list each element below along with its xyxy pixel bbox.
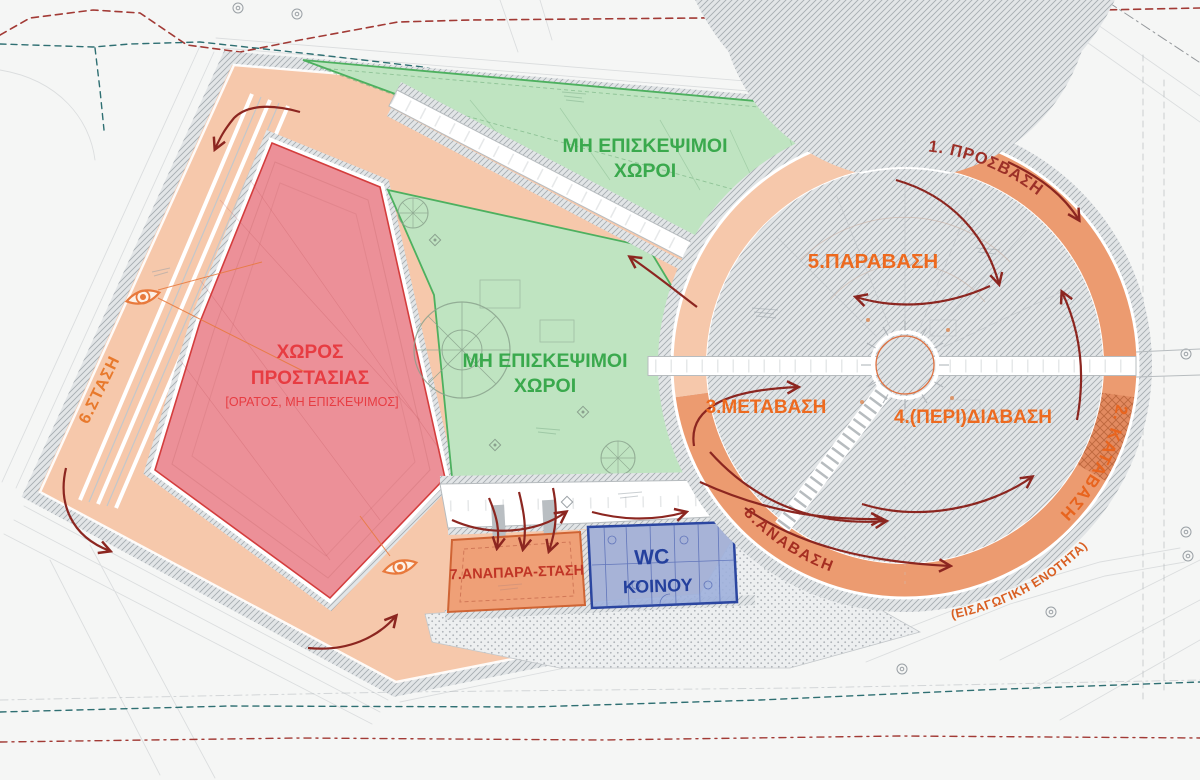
wc-label-line1: WC xyxy=(634,545,670,569)
zone-3-label: 3.ΜΕΤΑΒΑΣΗ xyxy=(706,397,827,418)
site-plan: 1. ΠΡΟΣΒΑΣΗ 2. ΚΑΤΑΒΑΣΗ (ΕΙΣΑΓΩΓΙΚΗ ΕΝΟΤ… xyxy=(0,0,1200,780)
ring-assembly xyxy=(648,0,1200,612)
site-plan-svg: 1. ΠΡΟΣΒΑΣΗ 2. ΚΑΤΑΒΑΣΗ (ΕΙΣΑΓΩΓΙΚΗ ΕΝΟΤ… xyxy=(0,0,1200,780)
boundary-line-teal-bottom xyxy=(0,682,1200,712)
zone-5-label: 5.ΠΑΡΑΒΑΣΗ xyxy=(808,250,938,273)
zone-4-label: 4.(ΠΕΡΙ)ΔΙΑΒΑΣΗ xyxy=(894,407,1052,428)
green-mid-label-line2: ΧΩΡΟΙ xyxy=(514,375,576,397)
protection-label-line1: ΧΩΡΟΣ xyxy=(277,342,344,363)
green-mid-label-line1: ΜΗ ΕΠΙΣΚΕΨΙΜΟΙ xyxy=(462,350,627,372)
green-top-label-line1: ΜΗ ΕΠΙΣΚΕΨΙΜΟΙ xyxy=(562,135,727,157)
wc-label-line2: ΚΟΙΝΟΥ xyxy=(623,575,693,597)
protection-note-label: [ΟΡΑΤΟΣ, ΜΗ ΕΠΙΣΚΕΨΙΜΟΣ] xyxy=(225,395,398,409)
boundary-line-red-bottom xyxy=(0,736,1200,742)
protection-label-line2: ΠΡΟΣΤΑΣΙΑΣ xyxy=(251,368,369,389)
green-top-label-line2: ΧΩΡΟΙ xyxy=(614,160,676,182)
